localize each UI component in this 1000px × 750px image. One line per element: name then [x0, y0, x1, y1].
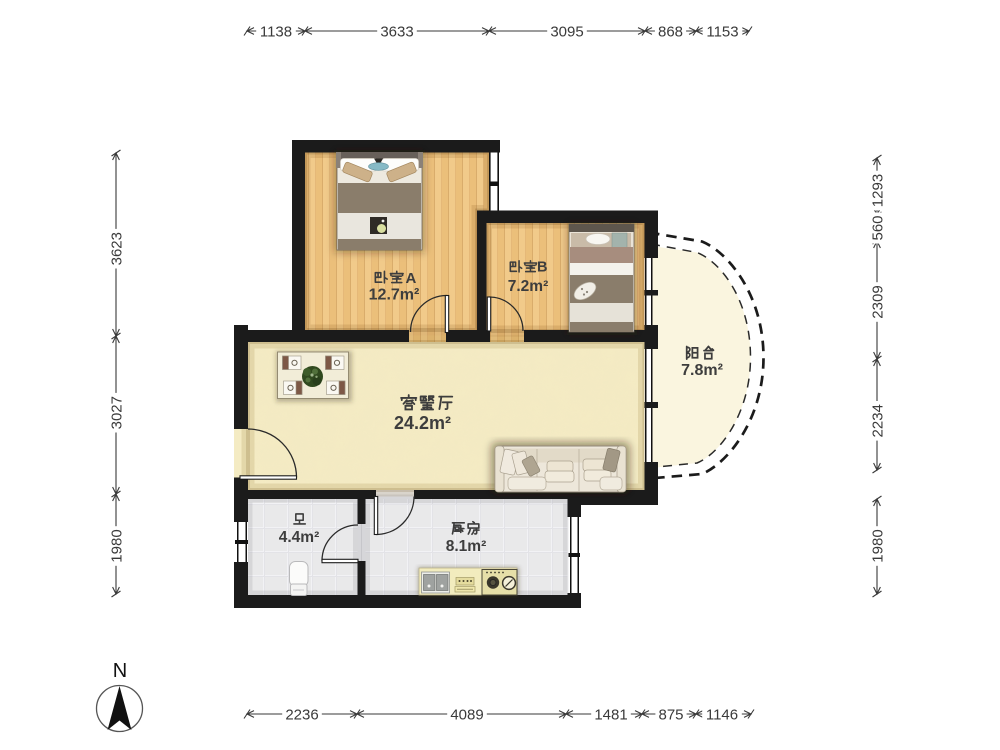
svg-text:2309: 2309	[869, 285, 886, 318]
svg-text:12.7m²: 12.7m²	[369, 287, 420, 304]
svg-text:3633: 3633	[380, 23, 413, 40]
svg-text:868: 868	[658, 23, 683, 40]
svg-text:3095: 3095	[550, 23, 583, 40]
svg-text:2234: 2234	[869, 404, 886, 437]
svg-text:1481: 1481	[594, 706, 627, 723]
svg-text:4.4m²: 4.4m²	[279, 529, 320, 546]
svg-text:3623: 3623	[108, 232, 125, 265]
svg-text:7.8m²: 7.8m²	[681, 362, 723, 379]
svg-text:B: B	[537, 260, 547, 276]
svg-text:8.1m²: 8.1m²	[446, 538, 487, 555]
svg-text:2236: 2236	[285, 706, 318, 723]
svg-text:1293: 1293	[869, 174, 886, 207]
svg-text:1146: 1146	[706, 706, 738, 723]
svg-text:875: 875	[658, 706, 683, 723]
svg-text:1153: 1153	[706, 23, 738, 40]
svg-text:1980: 1980	[108, 529, 125, 562]
svg-text:N: N	[113, 660, 127, 682]
svg-text:4089: 4089	[450, 706, 483, 723]
svg-text:24.2m²: 24.2m²	[394, 413, 451, 433]
svg-text:3027: 3027	[108, 396, 125, 429]
svg-text:7.2m²: 7.2m²	[508, 278, 549, 295]
svg-text:A: A	[406, 270, 417, 287]
svg-text:1138: 1138	[260, 23, 292, 40]
svg-text:1980: 1980	[869, 529, 886, 562]
svg-text:560: 560	[869, 215, 886, 240]
